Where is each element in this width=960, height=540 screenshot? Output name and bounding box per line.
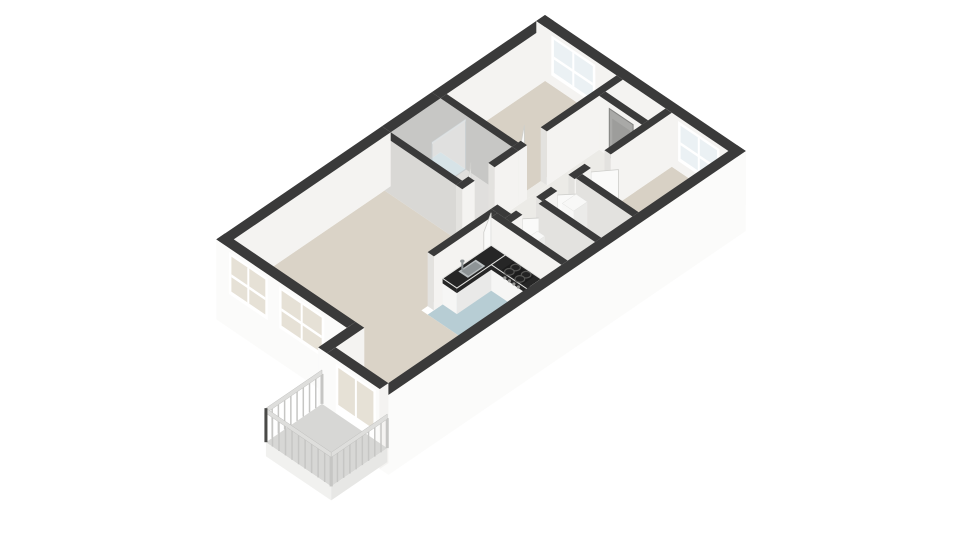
floor-plan-svg — [0, 0, 960, 540]
floor-plan-3d — [0, 0, 960, 540]
